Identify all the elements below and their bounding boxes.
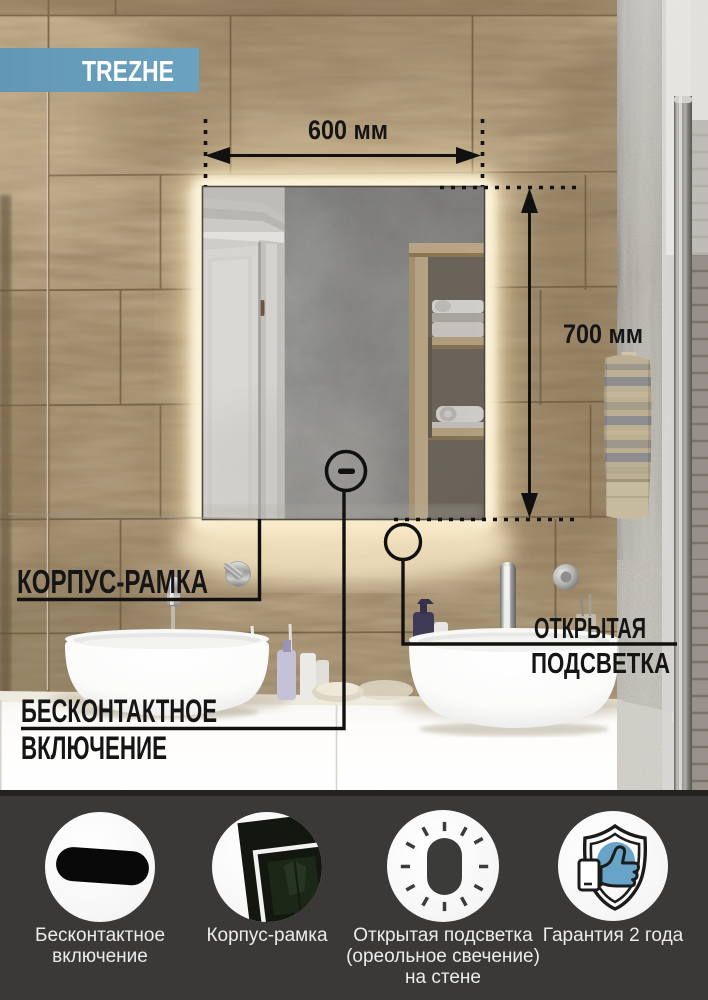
svg-text:Корпус-рамка: Корпус-рамка	[206, 925, 328, 946]
svg-text:700 мм: 700 мм	[563, 319, 643, 349]
svg-text:ВКЛЮЧЕНИЕ: ВКЛЮЧЕНИЕ	[21, 730, 167, 766]
svg-text:600 мм: 600 мм	[308, 115, 388, 145]
svg-text:(ореольное свечение): (ореольное свечение)	[346, 946, 540, 967]
svg-text:БЕСКОНТАКТНОЕ: БЕСКОНТАКТНОЕ	[21, 693, 217, 729]
svg-text:Открытая подсветка: Открытая подсветка	[353, 925, 533, 946]
svg-text:TREZHE: TREZHE	[82, 56, 174, 88]
svg-text:ПОДСВЕТКА: ПОДСВЕТКА	[531, 648, 670, 680]
svg-text:КОРПУС-РАМКА: КОРПУС-РАМКА	[17, 563, 208, 600]
svg-text:включение: включение	[52, 946, 148, 967]
svg-text:на стене: на стене	[405, 967, 481, 988]
svg-text:ОТКРЫТАЯ: ОТКРЫТАЯ	[534, 613, 646, 645]
svg-text:Бесконтактное: Бесконтактное	[35, 925, 165, 946]
svg-text:Гарантия 2 года: Гарантия 2 года	[543, 925, 684, 946]
